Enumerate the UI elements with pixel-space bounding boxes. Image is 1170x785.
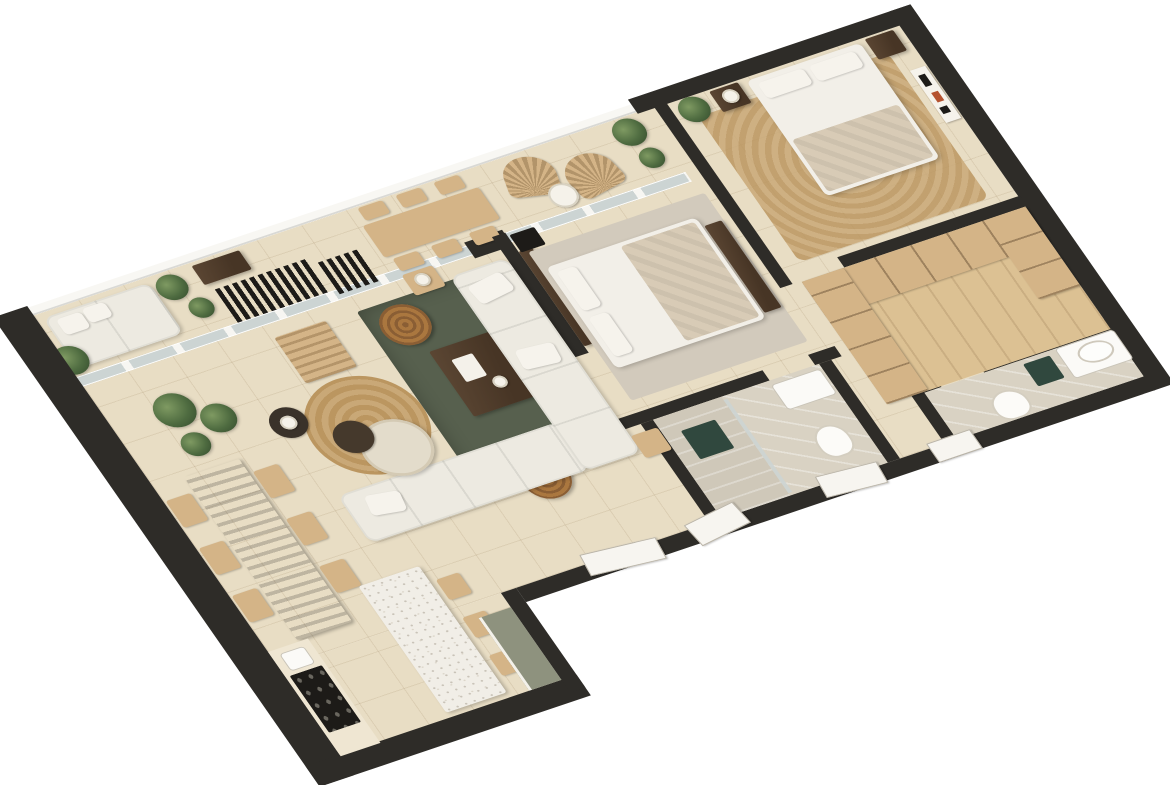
apartment-floor-plan bbox=[15, 12, 1170, 771]
wall-art-red-shape bbox=[931, 91, 944, 103]
floor-plan-canvas bbox=[0, 0, 1170, 785]
wall-art-black-shape bbox=[918, 74, 932, 87]
wall-art-black-shape bbox=[939, 105, 951, 114]
